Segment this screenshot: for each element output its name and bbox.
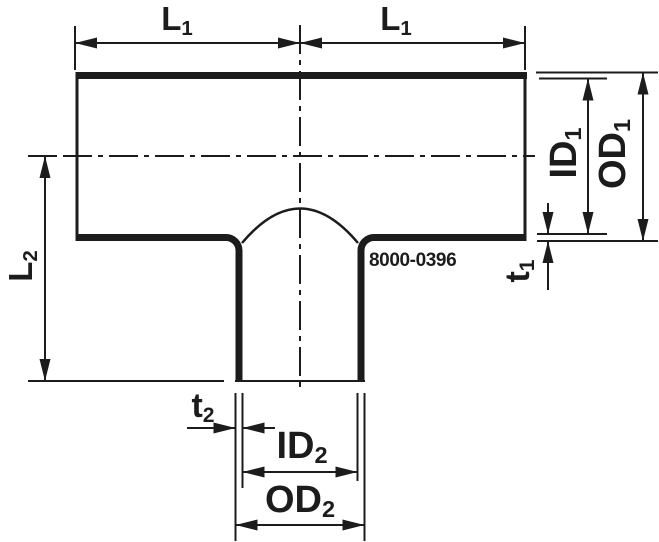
arrowhead-right	[343, 520, 365, 531]
drawing-canvas: L1 L1 L2 ID1 OD1	[0, 0, 659, 542]
dim-label-id2: ID2	[276, 425, 327, 468]
label-main: t	[499, 271, 537, 282]
arrowhead-right	[503, 38, 525, 49]
label-sub: 1	[516, 259, 539, 271]
label-sub: 1	[560, 127, 586, 140]
label-main: L	[380, 0, 400, 37]
dimension-t2: t2	[187, 387, 275, 434]
part-number-label: 8000-0396	[369, 250, 456, 271]
dim-label-id1: ID1	[543, 127, 586, 178]
label-main: L	[161, 0, 181, 37]
label-main: ID	[276, 425, 314, 467]
dim-label-od2: OD2	[265, 479, 335, 522]
dim-label-t2: t2	[191, 387, 214, 427]
label-main: OD	[592, 132, 634, 189]
arrowhead-left	[236, 520, 258, 531]
arrowhead-left	[243, 467, 265, 478]
dim-label-t1: t1	[499, 259, 539, 282]
tee-body-outline	[76, 72, 528, 381]
label-sub: 2	[19, 250, 42, 261]
arrowhead-bottom	[638, 219, 649, 241]
arrowhead-left	[243, 423, 265, 434]
arrowhead-right	[214, 423, 236, 434]
dim-label-od1: OD1	[592, 119, 635, 189]
arrowhead-bottom	[40, 359, 51, 381]
label-sub: 1	[609, 119, 635, 132]
label-main: t	[191, 387, 202, 425]
dim-label-l1-left: L1	[161, 0, 193, 40]
label-sub: 2	[203, 404, 215, 427]
arrowhead-bottom	[583, 212, 594, 234]
label-main: L	[2, 262, 39, 282]
dimension-l2: L2	[2, 156, 224, 381]
label-main: ID	[543, 141, 585, 179]
tee-fitting-technical-drawing: L1 L1 L2 ID1 OD1	[0, 0, 659, 542]
label-sub: 2	[322, 496, 335, 522]
dim-label-l1-right: L1	[380, 0, 412, 40]
arrowhead-left	[300, 38, 322, 49]
label-sub: 2	[314, 442, 327, 468]
label-sub: 1	[181, 17, 192, 40]
dim-label-l2: L2	[2, 250, 42, 282]
pipe-bottom-left-edge-and-branch-left-wall	[76, 238, 240, 381]
dimension-id2: ID2	[243, 425, 358, 478]
arrowhead-top	[40, 156, 51, 178]
label-sub: 1	[400, 17, 411, 40]
arrowhead-right	[278, 38, 300, 49]
arrowhead-right	[336, 467, 358, 478]
arrowhead-down	[543, 212, 554, 234]
arrowhead-up	[543, 241, 554, 263]
arrowhead-top	[583, 79, 594, 101]
dimension-od2: OD2	[236, 479, 365, 531]
arrowhead-top	[638, 73, 649, 95]
label-main: OD	[265, 479, 322, 521]
dimension-l1-left: L1	[75, 0, 300, 70]
dimension-l1-right: L1	[300, 0, 525, 70]
arrowhead-left	[75, 38, 97, 49]
